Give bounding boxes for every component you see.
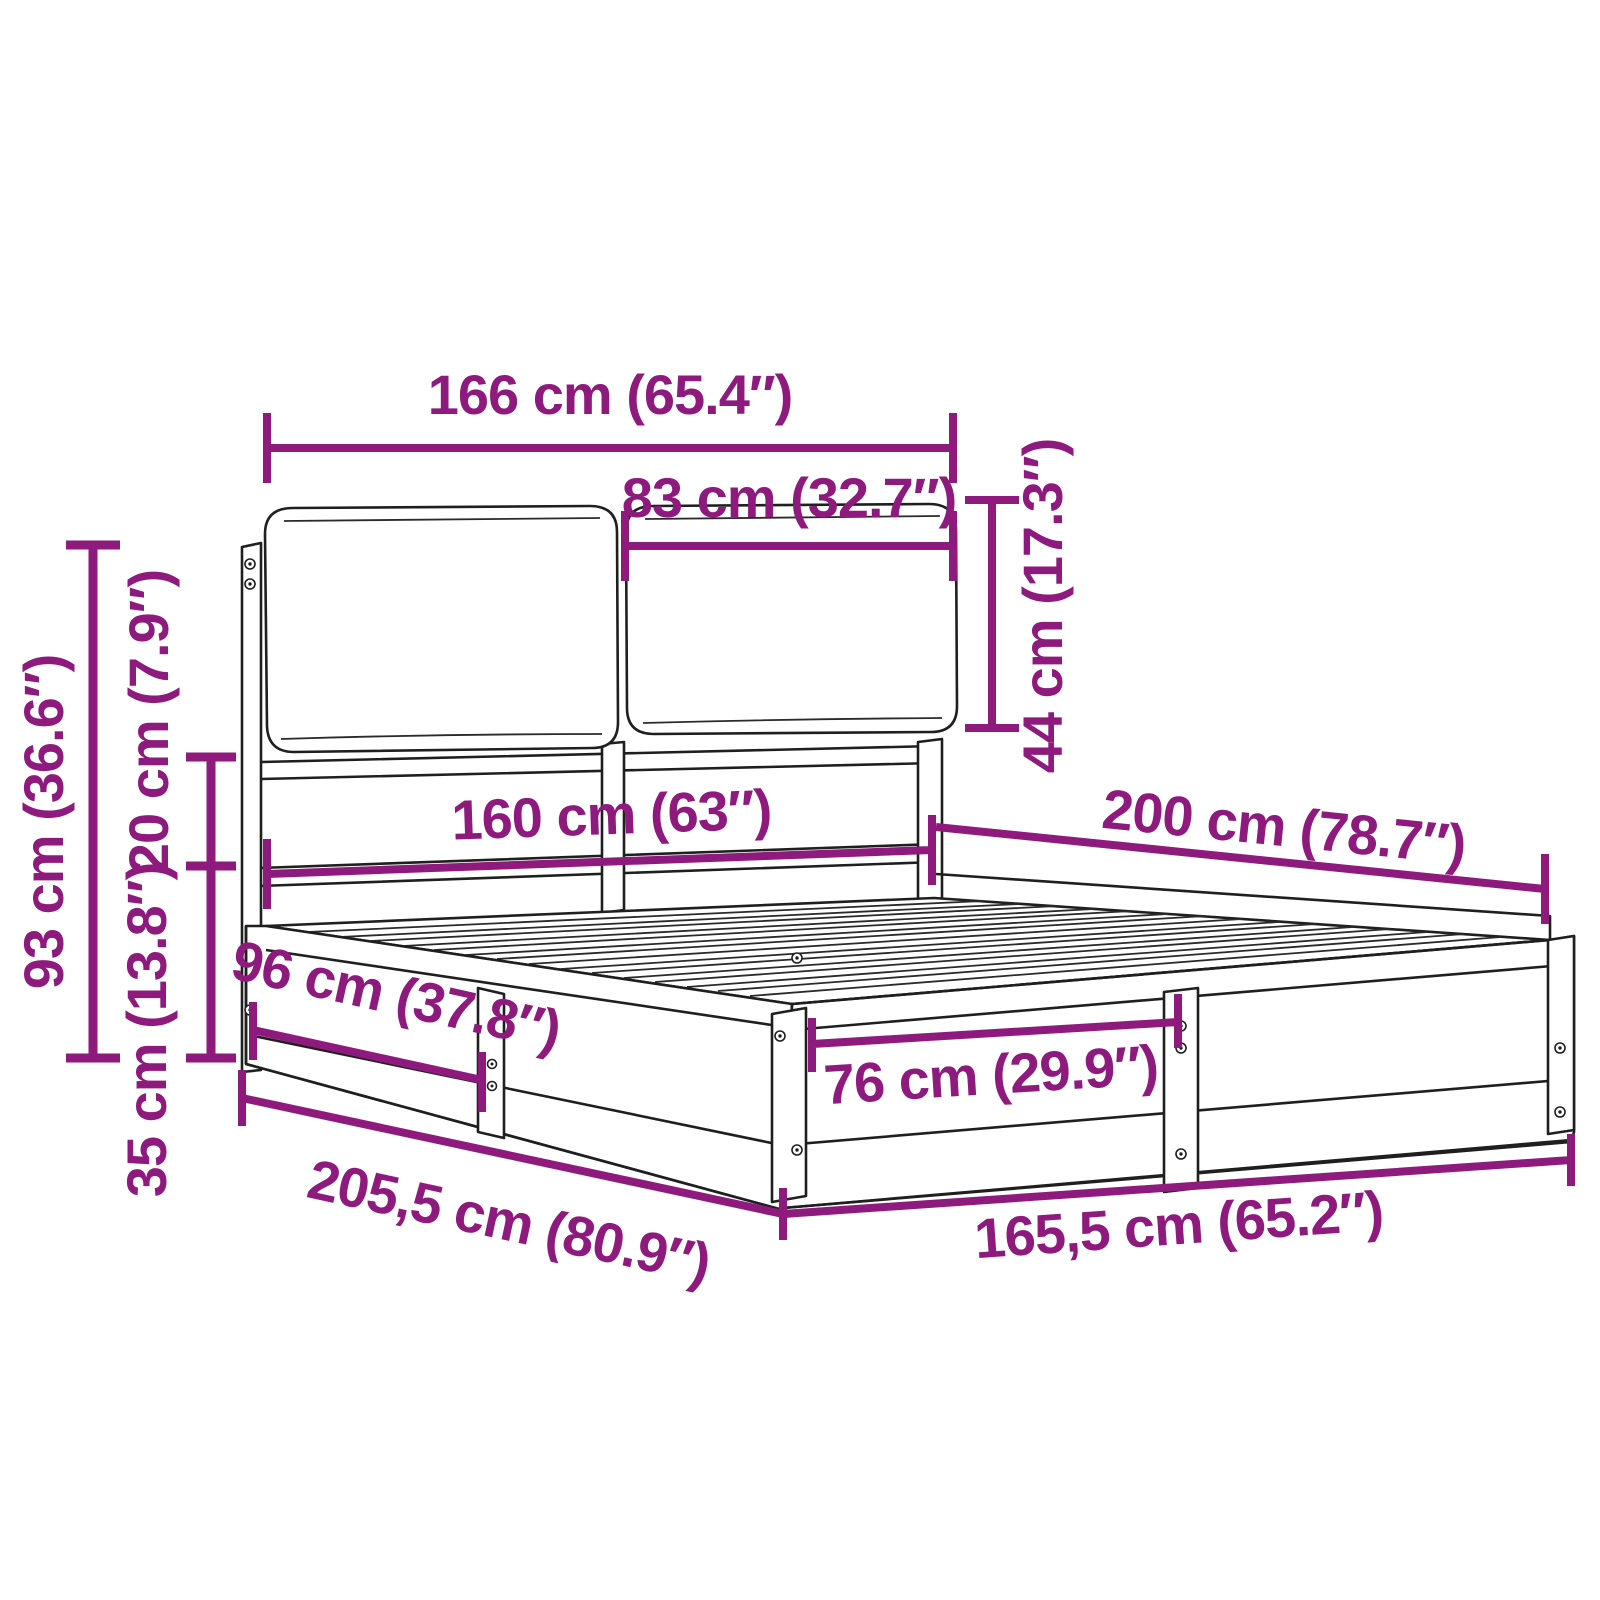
screw xyxy=(488,1060,497,1069)
dimension-gap-and-base-height: 20 cm (7.9″) 35 cm (13.8″) xyxy=(115,570,236,1197)
dim-label-overall-width-top: 166 cm (65.4″) xyxy=(428,363,793,426)
dim-label-gap-height: 20 cm (7.9″) xyxy=(117,570,180,874)
dimension-mattress-length: 200 cm (78.7″) xyxy=(936,777,1545,924)
right-corner-leg xyxy=(1548,936,1574,1134)
screw xyxy=(1555,1043,1565,1053)
dimension-mattress-width: 160 cm (63″) xyxy=(267,777,932,909)
bed-dimension-diagram: 166 cm (65.4″) 83 cm (32.7″) 44 cm (17.3… xyxy=(0,0,1600,1600)
screw xyxy=(792,1145,802,1155)
dim-label-headboard-height: 93 cm (36.6″) xyxy=(12,655,75,989)
dim-label-mattress-width: 160 cm (63″) xyxy=(450,777,772,851)
screw xyxy=(775,1031,785,1041)
screw xyxy=(245,559,255,569)
dimension-headboard-height: 93 cm (36.6″) xyxy=(12,545,120,1058)
headboard-cushion-right xyxy=(626,504,957,734)
screw xyxy=(488,1082,497,1091)
dim-label-base-height: 35 cm (13.8″) xyxy=(115,863,178,1197)
headboard-cushion-left xyxy=(265,506,618,752)
dimension-diagram-page: 166 cm (65.4″) 83 cm (32.7″) 44 cm (17.3… xyxy=(0,0,1600,1600)
screw xyxy=(792,953,802,963)
dim-label-cushion-height: 44 cm (17.3″) xyxy=(1011,439,1074,773)
dim-label-cushion-width: 83 cm (32.7″) xyxy=(622,466,956,529)
screw xyxy=(1176,1149,1186,1159)
dimension-cushion-height: 44 cm (17.3″) xyxy=(965,439,1074,773)
dim-label-overall-width-bottom: 165,5 cm (65.2″) xyxy=(972,1179,1385,1270)
screw xyxy=(1555,1107,1565,1117)
dimension-overall-width-top: 166 cm (65.4″) xyxy=(267,363,953,483)
screw xyxy=(245,579,255,589)
